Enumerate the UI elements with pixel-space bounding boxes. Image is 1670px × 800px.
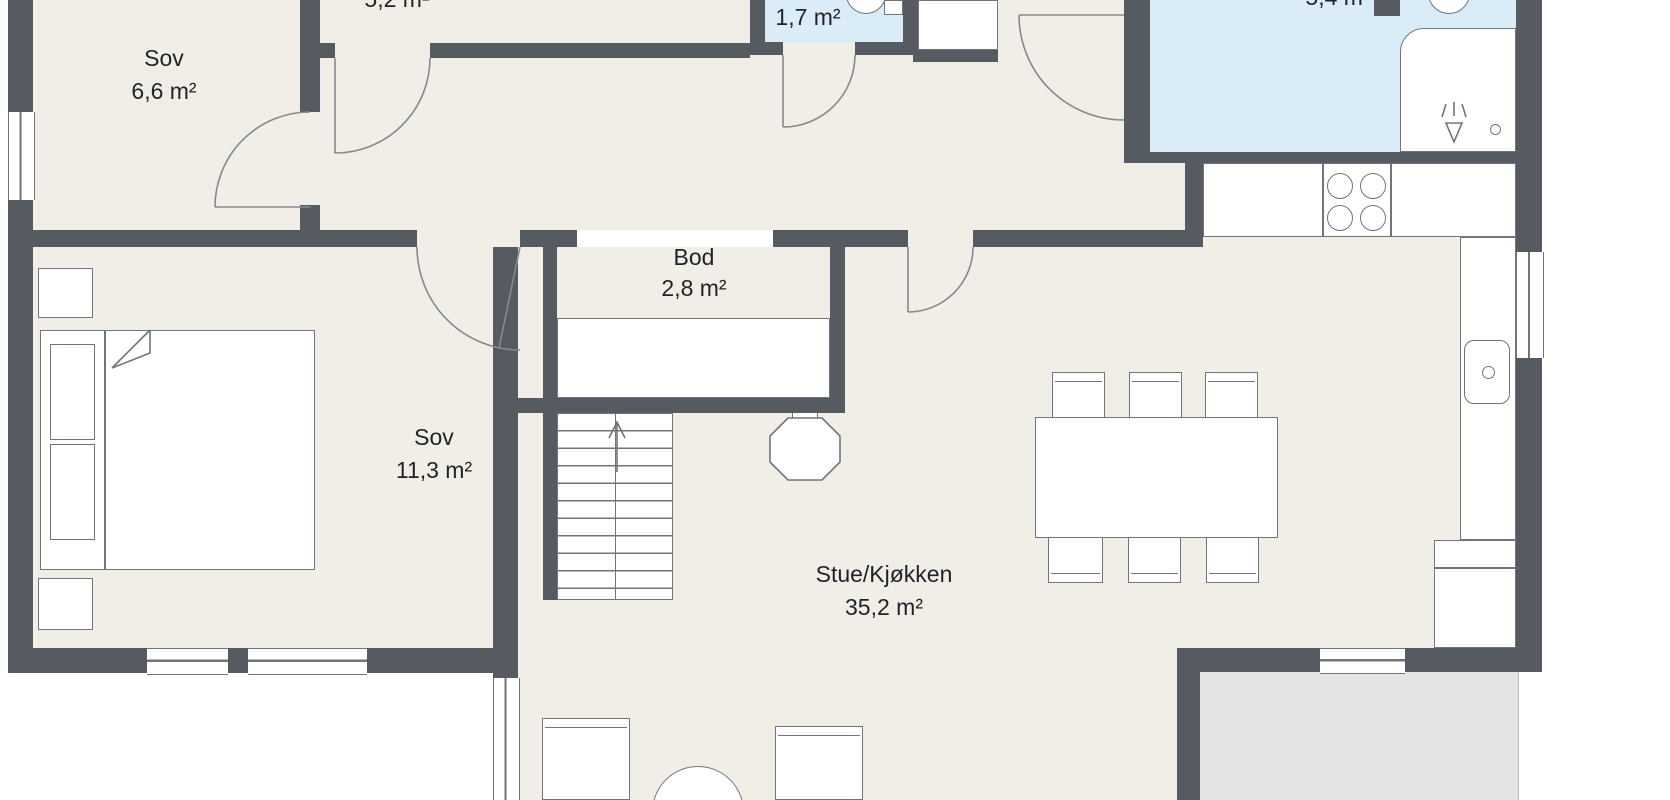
- room-area: 6,6 m²: [131, 75, 196, 108]
- room-label-bad: 5,4 m²: [1305, 0, 1370, 14]
- wall-segment: [913, 50, 998, 62]
- pillow: [50, 344, 95, 440]
- room-area: 11,3 m²: [396, 454, 472, 487]
- wall-segment: [430, 43, 750, 58]
- wall-wc-left: [750, 0, 765, 55]
- window: [1516, 252, 1544, 358]
- room-area: 35,2 m²: [816, 591, 953, 624]
- dining-chair: [1128, 535, 1181, 583]
- pillow: [50, 444, 95, 540]
- sink-faucet: [1482, 366, 1495, 379]
- room-name: Sov: [396, 421, 472, 454]
- window: [493, 678, 520, 800]
- dining-chair: [1129, 372, 1182, 420]
- wall-segment: [33, 230, 417, 247]
- room-area: 1,7 m²: [775, 1, 840, 34]
- bed: [105, 330, 315, 570]
- wall-segment: [973, 230, 1203, 247]
- wall-terrace-side: [1177, 648, 1200, 800]
- armchair: [542, 718, 630, 800]
- terrace-door: [1320, 648, 1405, 674]
- room-label-sov-2: Sov 11,3 m²: [396, 421, 472, 487]
- stove-burners-icon: [1327, 173, 1353, 199]
- wall-bathroom-left: [1124, 0, 1150, 163]
- kitchen-counter-top: [1203, 163, 1516, 237]
- room-area: 2,8 m²: [661, 273, 726, 304]
- dining-table: [1035, 417, 1278, 538]
- wall-wc-right: [903, 0, 918, 55]
- wall-exterior-left: [8, 0, 33, 673]
- stove-burners-icon: [1360, 205, 1386, 231]
- wall-segment: [320, 43, 335, 58]
- wall-segment: [855, 42, 903, 55]
- dining-chair: [1206, 535, 1259, 583]
- counter-divider: [1435, 567, 1515, 569]
- counter-divider: [1322, 164, 1324, 236]
- dining-chair: [1052, 372, 1105, 420]
- stove-burners-icon: [1360, 173, 1386, 199]
- room-area: 5,2 m²: [364, 0, 429, 16]
- nightstand: [38, 578, 93, 630]
- room-label-sov-1: Sov 6,6 m²: [131, 42, 196, 108]
- room-label-bod: Bod 2,8 m²: [661, 242, 726, 304]
- wall-exterior-bottom-right: [1405, 648, 1542, 672]
- kitchen-counter-bottom: [1434, 540, 1516, 648]
- dining-chair: [1048, 535, 1103, 583]
- window: [147, 648, 228, 675]
- storage-shelf: [557, 318, 830, 398]
- room-label-top: 5,2 m²: [364, 0, 429, 16]
- shower-drain: [1490, 124, 1501, 135]
- wall-segment: [1185, 152, 1203, 247]
- room-area: 5,4 m²: [1305, 0, 1370, 14]
- wall-segment: [518, 398, 845, 413]
- floor-plan: Sov 6,6 m² 5,2 m² 1,7 m² 5,4 m² Bod 2,8 …: [0, 0, 1670, 800]
- room-name: Bod: [661, 242, 726, 273]
- toilet-cistern: [884, 0, 903, 15]
- staircase: [557, 413, 673, 600]
- counter-divider: [1390, 164, 1392, 236]
- wall-bathroom-bottom: [1124, 152, 1516, 163]
- wall-segment: [300, 0, 320, 112]
- terrace: [1200, 672, 1519, 800]
- wall-bod-left: [543, 247, 557, 600]
- room-label-wc: 1,7 m²: [775, 1, 840, 34]
- room-name: Sov: [131, 42, 196, 75]
- wall-segment: [765, 42, 783, 55]
- armchair: [775, 726, 863, 800]
- room-name: Stue/Kjøkken: [816, 558, 953, 591]
- bathroom-fixture: [1374, 0, 1400, 16]
- dining-chair: [1205, 372, 1258, 420]
- window: [248, 648, 367, 675]
- nightstand: [38, 268, 93, 318]
- wall-bod-right: [830, 230, 845, 413]
- stove-burners-icon: [1327, 205, 1353, 231]
- window: [8, 112, 35, 200]
- room-label-stue-kjokken: Stue/Kjøkken 35,2 m²: [816, 558, 953, 624]
- closet: [918, 0, 998, 50]
- wall-segment: [520, 230, 577, 247]
